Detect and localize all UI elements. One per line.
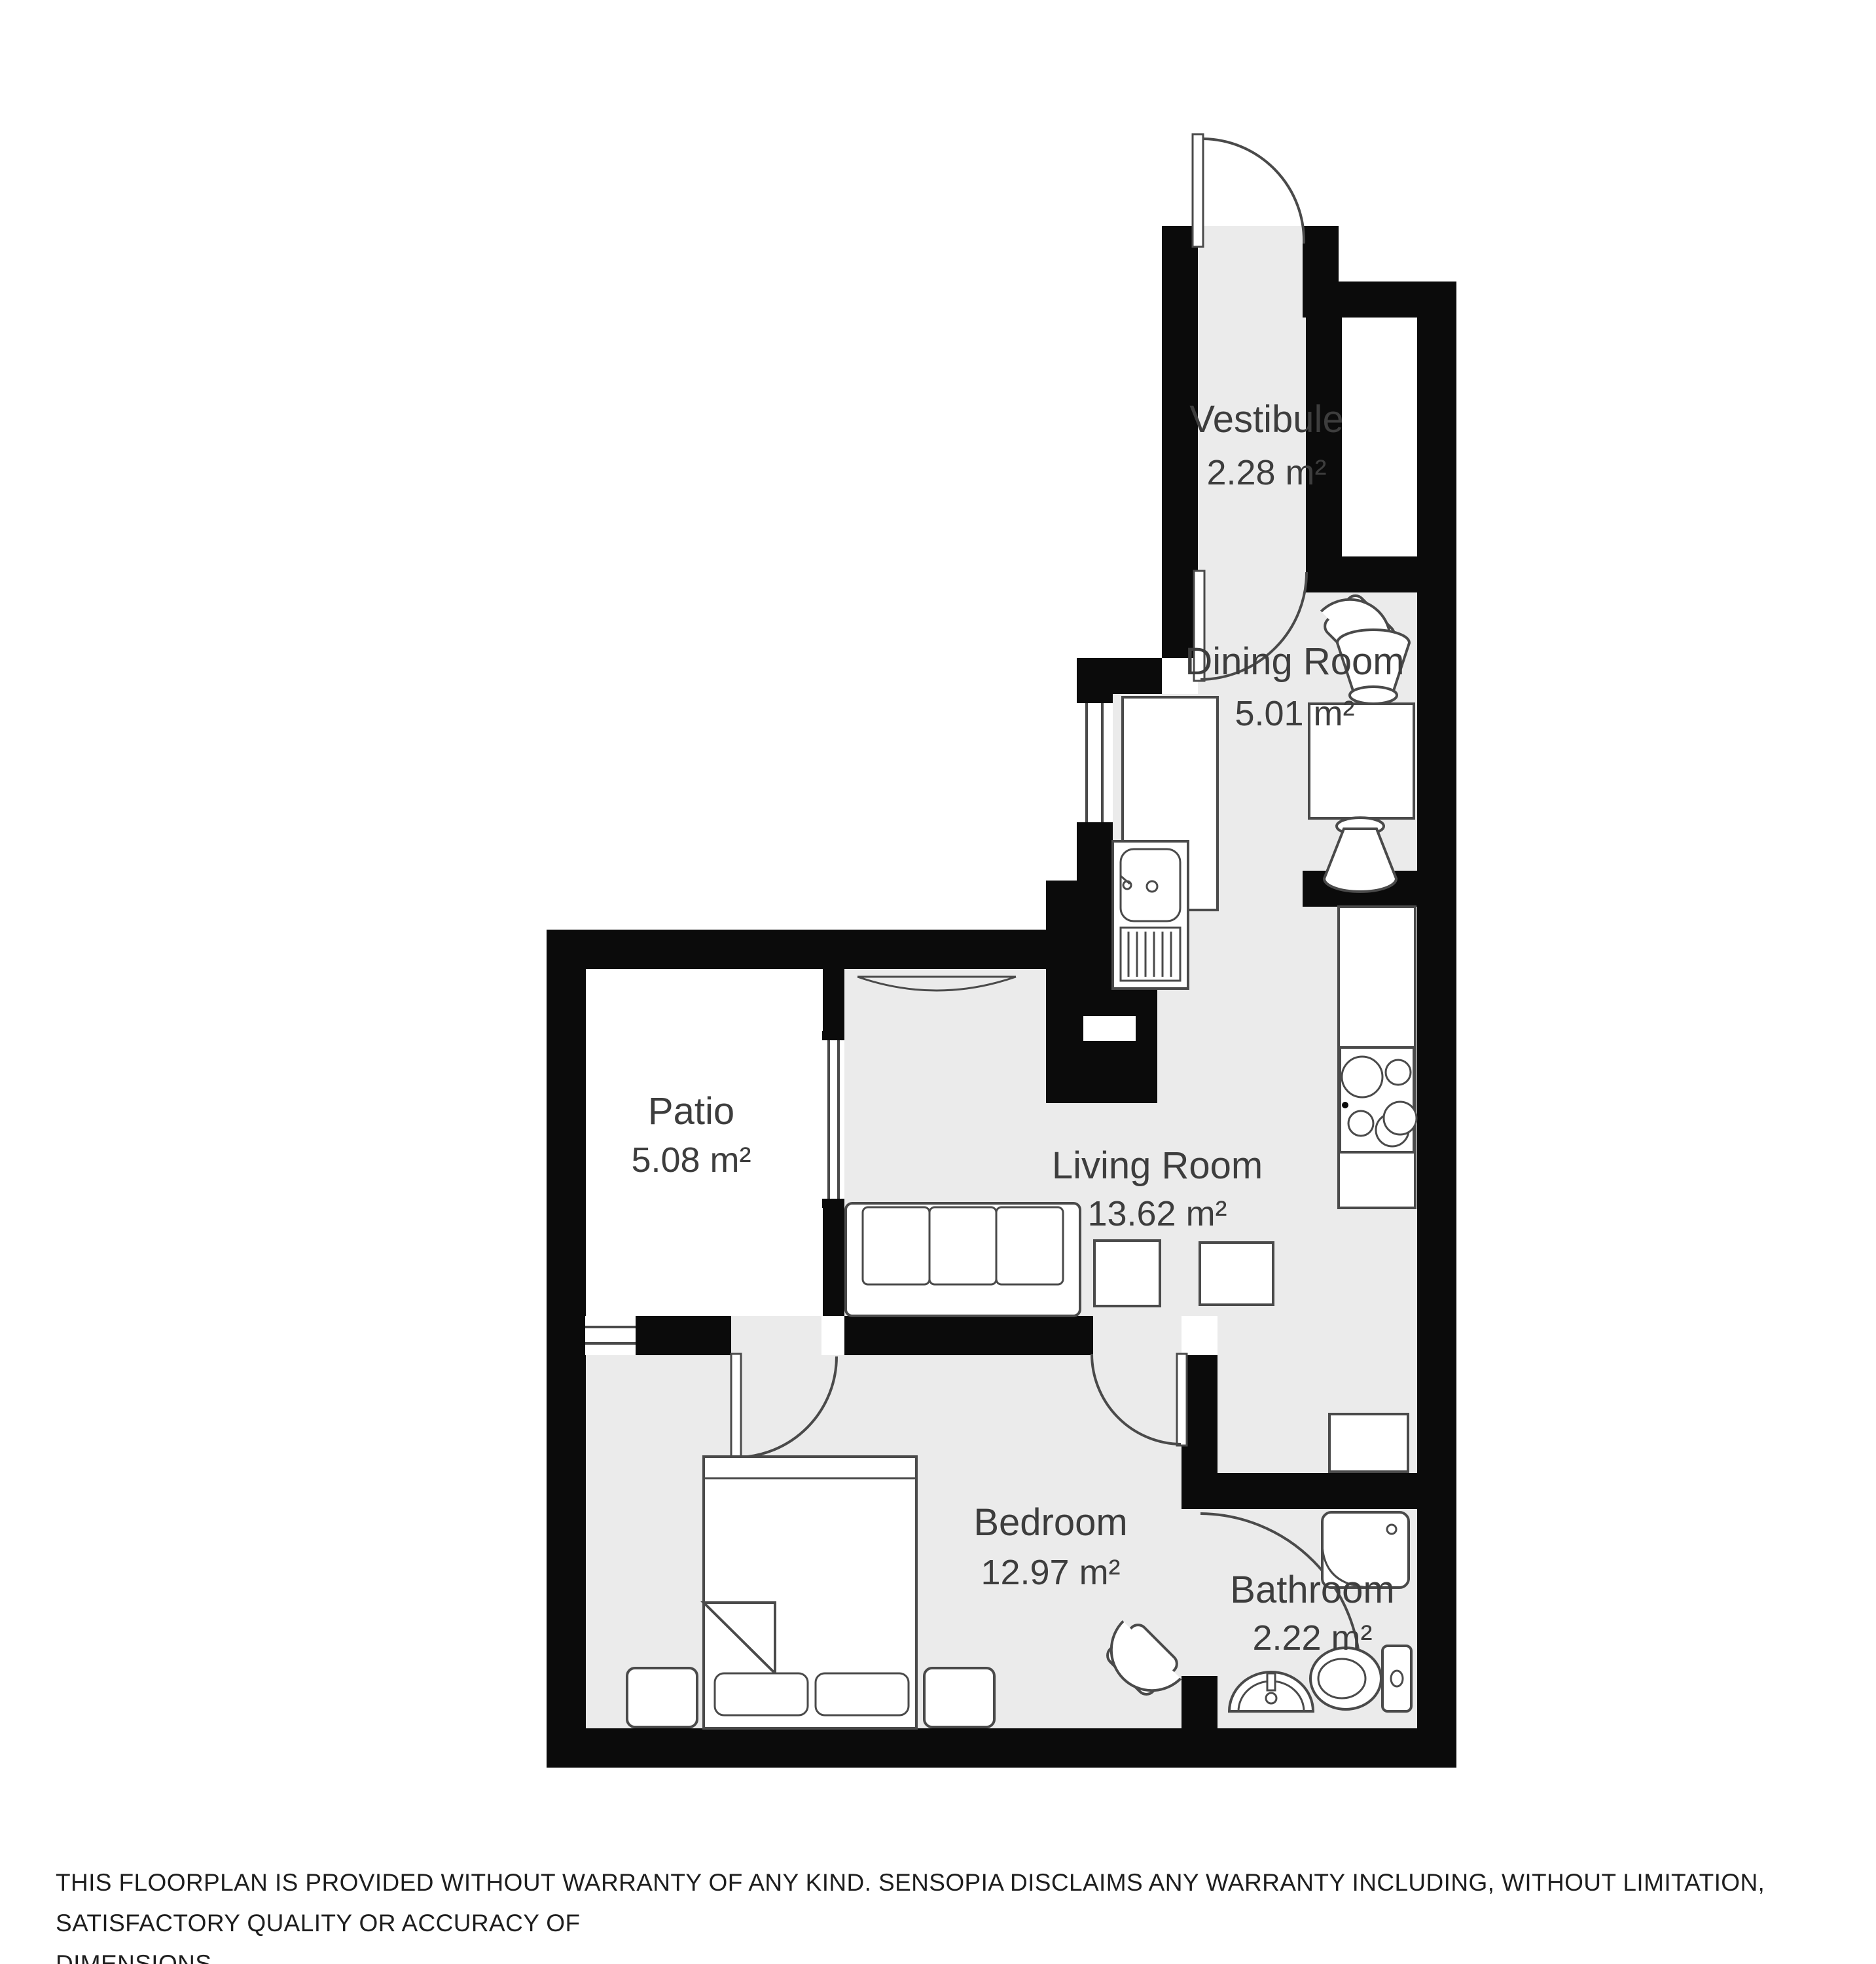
wall-bathroom-top — [1218, 1473, 1417, 1509]
disclaimer-line-1: THIS FLOORPLAN IS PROVIDED WITHOUT WARRA… — [56, 1869, 1765, 1937]
hall-door-threshold — [1093, 1316, 1182, 1355]
room-area-dining: 5.01 m² — [1235, 694, 1354, 733]
wall-bedroom-bathroom-lower — [1182, 1676, 1218, 1768]
room-label-bathroom: Bathroom — [1230, 1569, 1394, 1611]
wall-notch-close — [1306, 556, 1417, 592]
room-label-bedroom: Bedroom — [973, 1501, 1127, 1544]
washing-machine-icon — [1329, 1414, 1408, 1472]
pillow-icon — [715, 1673, 808, 1715]
sofa-icon — [846, 1203, 1080, 1316]
wall-patio-divider-bottom — [823, 1208, 844, 1316]
wall-top-right — [1339, 282, 1456, 318]
wall-outer-right — [1417, 282, 1456, 1768]
room-area-vestibule: 2.28 m² — [1206, 453, 1326, 492]
room-area-bedroom: 12.97 m² — [981, 1553, 1120, 1592]
floorplan-drawing: Vestibule 2.28 m² Dining Room 5.01 m² Li… — [0, 0, 1876, 1964]
wall-outer-bottom — [547, 1728, 1456, 1768]
room-area-patio: 5.08 m² — [631, 1140, 751, 1180]
room-label-dining: Dining Room — [1185, 640, 1404, 683]
wall-vestibule-left — [1162, 226, 1198, 658]
nightstand-icon — [924, 1668, 994, 1727]
bathroom-door-threshold — [1182, 1509, 1218, 1676]
kitchen-counter-icon — [1339, 907, 1416, 1208]
wall-patio-living-top — [547, 930, 1077, 969]
wall-center-mass-2 — [1114, 985, 1157, 1103]
patio-living-window-icon — [822, 1031, 844, 1208]
cabinet-icon — [1200, 1243, 1273, 1305]
wall-entry-corner — [1303, 226, 1339, 318]
room-area-bathroom: 2.22 m² — [1252, 1618, 1372, 1658]
side-table-icon — [1094, 1241, 1160, 1306]
disclaimer-line-2: DIMENSIONS. — [56, 1950, 219, 1964]
bedroom-window-icon — [576, 1316, 645, 1355]
wall-dining-jog — [1077, 658, 1162, 694]
dining-window-icon — [1077, 694, 1113, 831]
wall-slot — [1083, 1016, 1136, 1041]
wall-bedroom-top-2 — [645, 1316, 731, 1355]
bedroom-door-threshold — [731, 1316, 821, 1355]
room-label-living: Living Room — [1052, 1144, 1263, 1187]
double-bed-icon — [704, 1457, 916, 1728]
room-label-vestibule: Vestibule — [1189, 398, 1343, 441]
wall-bedroom-top-3 — [844, 1316, 1093, 1355]
nightstand-icon — [627, 1668, 697, 1727]
kitchen-sink-icon — [1113, 841, 1188, 989]
wall-bedroom-top-1 — [547, 1316, 576, 1355]
pillow-icon — [816, 1673, 909, 1715]
floorplan-page: Vestibule 2.28 m² Dining Room 5.01 m² Li… — [0, 0, 1876, 1964]
disclaimer-text: THIS FLOORPLAN IS PROVIDED WITHOUT WARRA… — [56, 1863, 1849, 1964]
wall-patio-divider-top — [823, 969, 844, 1031]
room-area-living: 13.62 m² — [1087, 1194, 1227, 1233]
wall-center-mass — [1046, 881, 1114, 1103]
wall-dining-left-lower — [1077, 831, 1113, 881]
room-label-patio: Patio — [648, 1090, 734, 1133]
